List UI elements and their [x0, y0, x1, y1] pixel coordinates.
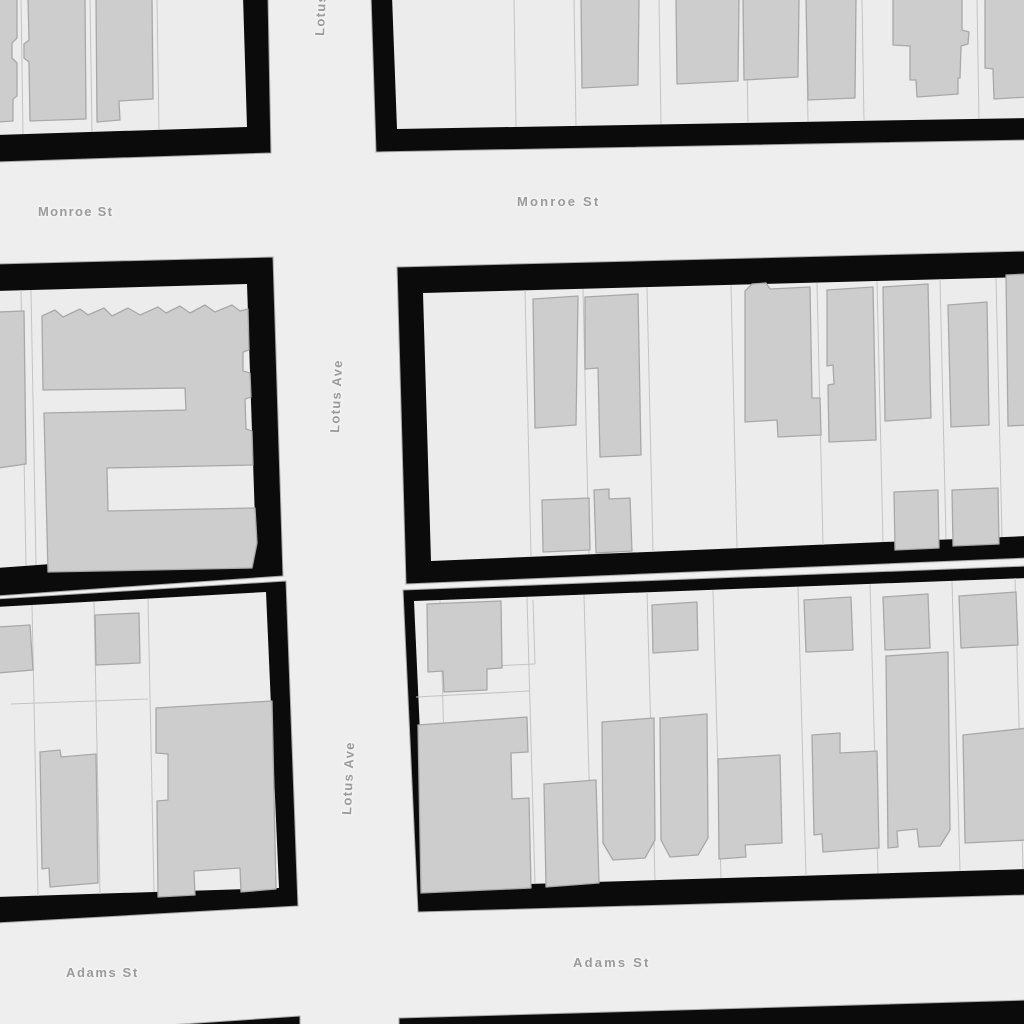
building-footprint: [959, 592, 1018, 648]
building-footprint: [418, 717, 531, 893]
city-block-northeast: [371, 0, 1024, 152]
city-block-east: [397, 251, 1024, 584]
city-block-southwest: [0, 581, 298, 923]
building-footprint: [718, 755, 782, 859]
city-block-northwest: [0, 0, 271, 162]
building-footprint: [743, 0, 799, 80]
building-footprint: [1006, 274, 1024, 426]
building-footprint: [594, 489, 632, 553]
building-footprint: [804, 597, 853, 652]
building-footprint: [963, 728, 1024, 843]
building-footprint: [652, 602, 698, 653]
building-footprint: [0, 625, 33, 673]
street-label-monroe-st-east: Monroe St: [517, 194, 600, 209]
map-canvas[interactable]: Monroe St Monroe St Lotus Ave Lotus Ave …: [0, 0, 1024, 1024]
street-label-lotus-ave-middle: Lotus Ave: [327, 359, 345, 433]
building-footprint: [95, 613, 140, 665]
building-footprint: [827, 287, 876, 442]
building-footprint: [581, 0, 639, 88]
building-footprint: [883, 594, 930, 650]
building-footprint: [602, 718, 655, 860]
street-label-adams-st-east: Adams St: [573, 955, 651, 970]
building-footprint: [894, 490, 939, 550]
map-viewport[interactable]: Monroe St Monroe St Lotus Ave Lotus Ave …: [0, 0, 1024, 1024]
city-block-southeast: [403, 566, 1024, 912]
building-footprint: [886, 652, 950, 848]
building-footprint: [533, 296, 578, 428]
building-footprint: [676, 0, 739, 84]
building-footprint: [0, 311, 26, 468]
building-footprint: [156, 701, 276, 897]
building-footprint: [745, 283, 821, 437]
building-footprint: [952, 488, 999, 546]
building-footprint: [544, 780, 599, 887]
street-label-adams-st-west: Adams St: [66, 965, 139, 980]
building-footprint: [883, 284, 931, 421]
building-footprint: [24, 0, 86, 121]
building-footprint: [948, 302, 989, 427]
building-footprint: [542, 498, 590, 552]
building-footprint: [806, 0, 856, 100]
building-footprint: [40, 750, 98, 887]
building-footprint-large-complex: [42, 305, 257, 572]
building-footprint: [660, 714, 708, 857]
street-label-monroe-st-west: Monroe St: [38, 204, 113, 219]
city-block-west: [0, 257, 283, 596]
street-label-lotus-ave-lower: Lotus Ave: [339, 741, 357, 815]
